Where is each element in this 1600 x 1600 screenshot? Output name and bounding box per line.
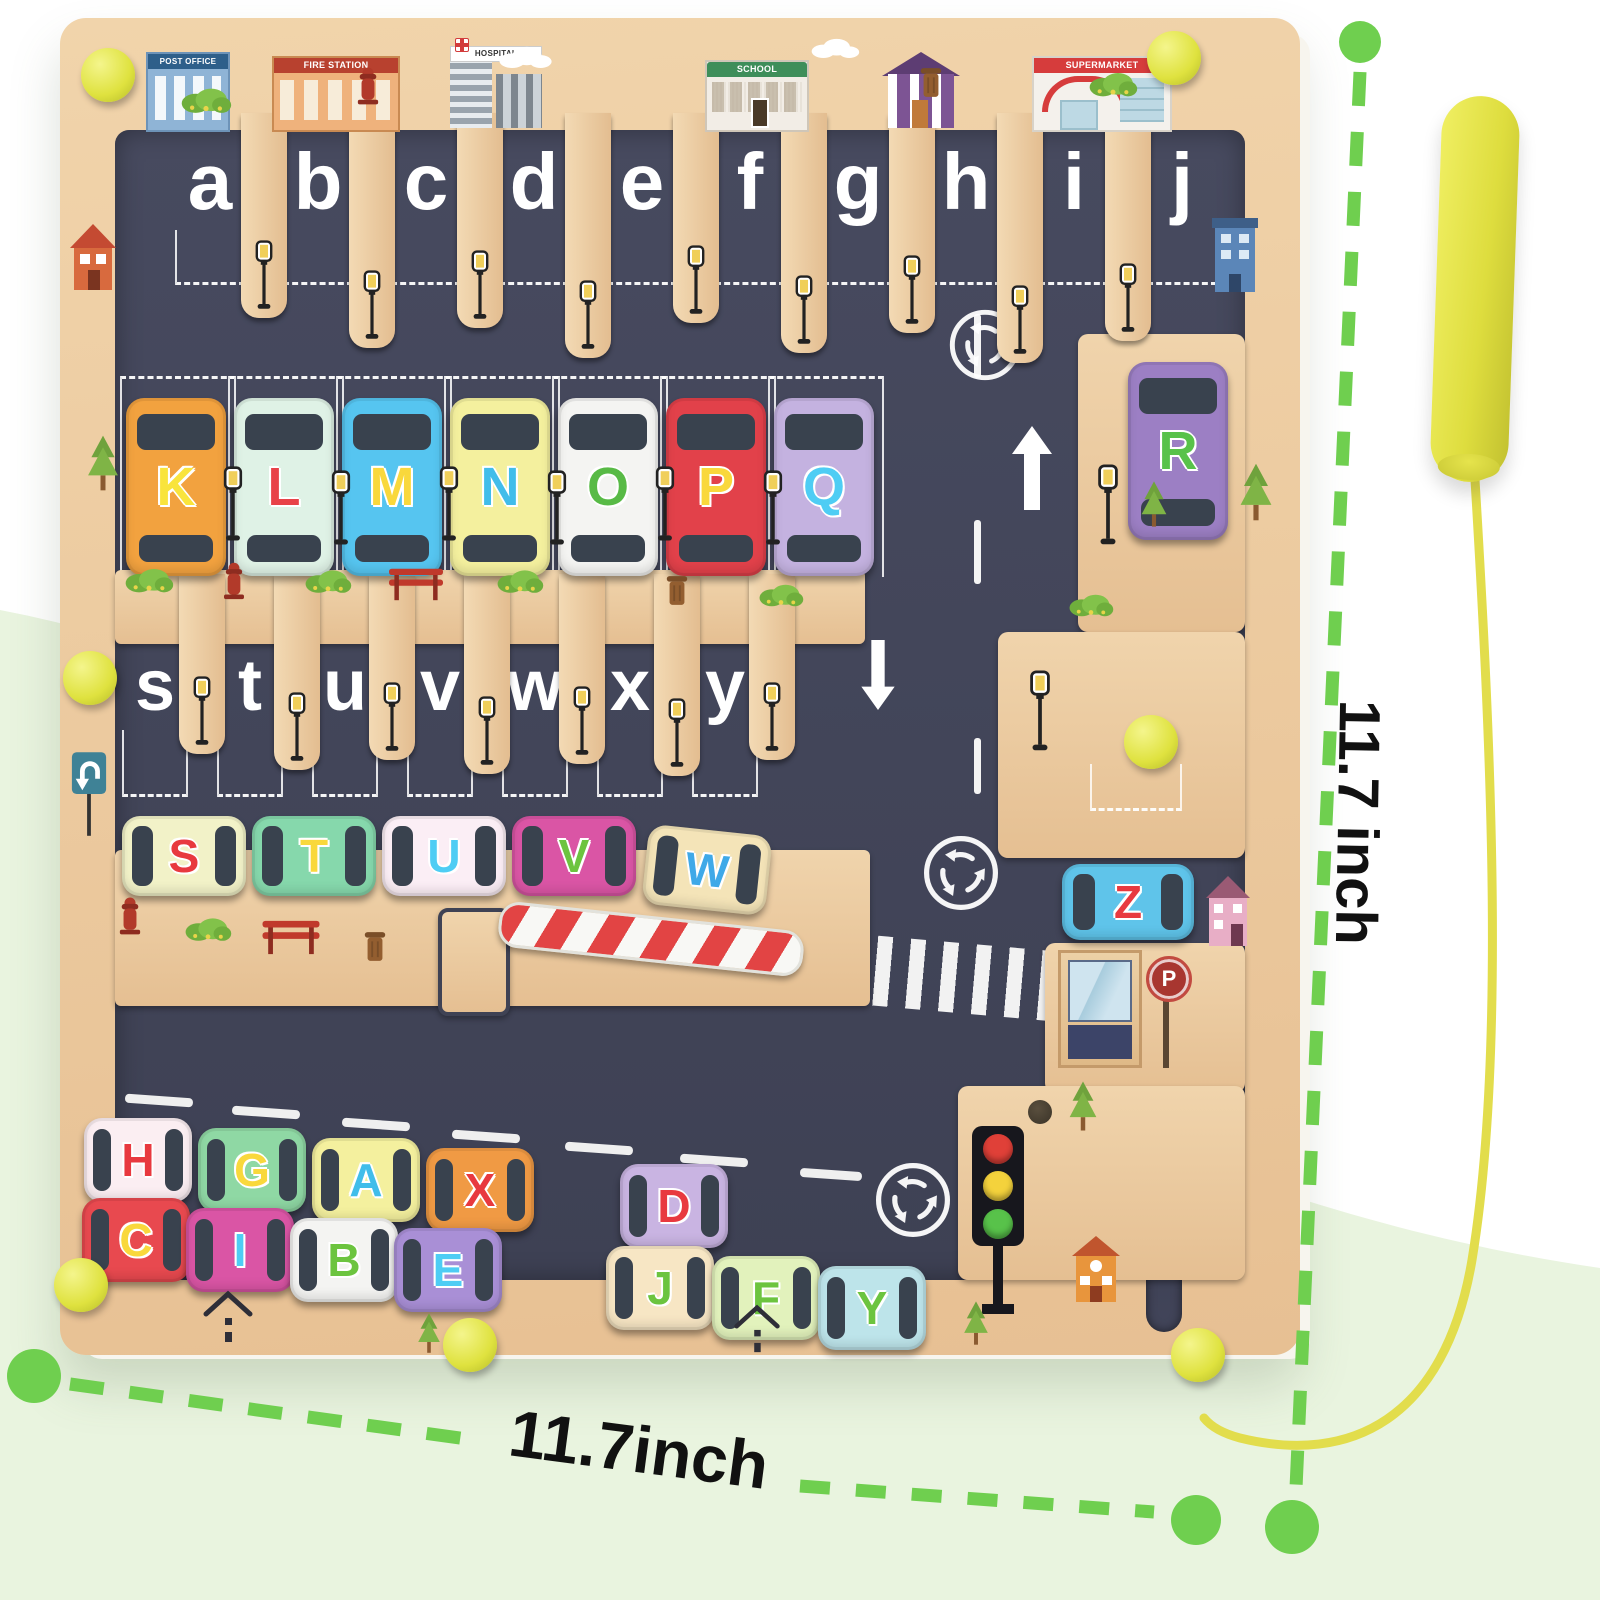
- slider-slat[interactable]: [997, 113, 1043, 363]
- tree-icon: [86, 434, 120, 492]
- letter-car-B[interactable]: B: [290, 1218, 398, 1302]
- purple-house-door: [912, 100, 928, 128]
- slider-slat[interactable]: [464, 574, 510, 774]
- slider-slat[interactable]: [179, 574, 225, 754]
- letter-car-Q[interactable]: Q: [774, 398, 874, 576]
- parking-spot: [931, 230, 1001, 285]
- trash-icon: [918, 64, 944, 100]
- toll-booth-panel: [1068, 1025, 1132, 1059]
- parking-spot: [283, 230, 353, 285]
- house-pink-icon: [1204, 874, 1252, 950]
- traffic-light-bulb: [983, 1209, 1013, 1239]
- lamppost-icon: [1094, 464, 1122, 548]
- road-center-dash: [974, 738, 981, 794]
- parking-spot: [715, 230, 785, 285]
- product-photo: POST OFFICE FIRE STATION HOSPITAL SCHOOL…: [0, 0, 1600, 1600]
- maze-letter-a: a: [188, 142, 233, 222]
- slider-slat[interactable]: [781, 113, 827, 353]
- lamppost-icon: [1007, 285, 1033, 357]
- parking-sign-letter: P: [1162, 966, 1177, 992]
- house-outline-icon: [732, 1304, 782, 1354]
- corner-knob: [1147, 31, 1201, 85]
- supermarket-door: [1060, 100, 1098, 130]
- lamppost-icon: [379, 682, 405, 754]
- parking-spot: [1090, 764, 1182, 811]
- corner-knob: [63, 651, 117, 705]
- corner-knob: [1124, 715, 1178, 769]
- lamppost-icon: [664, 698, 690, 770]
- slider-slat[interactable]: [241, 113, 287, 318]
- toll-booth-window: [1068, 960, 1132, 1022]
- bush-icon: [1068, 590, 1114, 618]
- maze-letter-f: f: [737, 142, 764, 222]
- traffic-light-bulb: [983, 1134, 1013, 1164]
- slider-slat[interactable]: [1105, 113, 1151, 341]
- letter-car-L[interactable]: L: [234, 398, 334, 576]
- lamppost-icon: [251, 240, 277, 312]
- slider-slat[interactable]: [349, 113, 395, 348]
- house-red-icon: [68, 222, 118, 294]
- letter-car-P[interactable]: P: [666, 398, 766, 576]
- letter-car-W[interactable]: W: [641, 824, 773, 917]
- letter-car-V[interactable]: V: [512, 816, 636, 896]
- slider-slat[interactable]: [457, 113, 503, 328]
- maze-letter-g: g: [834, 142, 883, 222]
- parking-spot: [823, 230, 893, 285]
- slider-slat[interactable]: [565, 113, 611, 358]
- lamppost-icon: [683, 245, 709, 317]
- letter-car-O[interactable]: O: [558, 398, 658, 576]
- slider-slat[interactable]: [889, 113, 935, 333]
- maze-letter-x: x: [610, 650, 650, 722]
- maze-letter-c: c: [404, 142, 449, 222]
- parking-spot: [1147, 230, 1217, 285]
- lamppost-icon: [652, 466, 678, 544]
- letter-car-I[interactable]: I: [186, 1208, 294, 1292]
- bush-icon: [758, 580, 804, 608]
- hydrant-icon: [356, 64, 380, 106]
- maze-letter-j: j: [1171, 142, 1193, 222]
- maze-letter-b: b: [294, 142, 343, 222]
- cloud-icon: [496, 46, 554, 68]
- lamppost-icon: [899, 255, 925, 327]
- red-cross-icon: [455, 38, 469, 52]
- post-office-label: POST OFFICE: [148, 54, 228, 69]
- parking-spot: [175, 230, 245, 285]
- corner-knob: [443, 1318, 497, 1372]
- lamppost-icon: [759, 682, 785, 754]
- cloud-icon: [808, 38, 862, 58]
- slider-slat[interactable]: [673, 113, 719, 323]
- maze-letter-u: u: [323, 650, 367, 722]
- trash-icon: [362, 928, 388, 964]
- parking-spot: [499, 230, 569, 285]
- house-orange-icon: [1070, 1234, 1122, 1306]
- magnetic-pen-wand[interactable]: [1429, 95, 1520, 483]
- bench-icon: [386, 566, 446, 602]
- lamppost-icon: [760, 470, 786, 548]
- maze-letter-v: v: [420, 650, 460, 722]
- alphabet-maze-board: POST OFFICE FIRE STATION HOSPITAL SCHOOL…: [60, 18, 1300, 1355]
- hospital-tower: [450, 58, 492, 128]
- roundabout-icon: [873, 1160, 953, 1240]
- lamppost-icon: [467, 250, 493, 322]
- letter-car-U[interactable]: U: [382, 816, 506, 896]
- letter-car-Y[interactable]: Y: [818, 1266, 926, 1350]
- slider-slat[interactable]: [559, 574, 605, 764]
- school-label: SCHOOL: [707, 62, 807, 77]
- parking-sign-pole: [1163, 996, 1169, 1068]
- bush-icon: [180, 84, 232, 114]
- letter-car-Z[interactable]: Z: [1062, 864, 1194, 940]
- bench-icon: [260, 918, 322, 956]
- parking-spot: [391, 230, 461, 285]
- maze-letter-e: e: [620, 142, 665, 222]
- letter-car-S[interactable]: S: [122, 816, 246, 896]
- building-school: SCHOOL: [705, 60, 809, 132]
- toll-booth: [1058, 950, 1142, 1068]
- corner-knob: [81, 48, 135, 102]
- bush-icon: [304, 566, 352, 594]
- corner-knob: [54, 1258, 108, 1312]
- slider-slat[interactable]: [274, 574, 320, 770]
- bush-icon: [124, 564, 174, 594]
- letter-car-D[interactable]: D: [620, 1164, 728, 1248]
- roundabout-icon: [921, 833, 1001, 913]
- maze-letter-h: h: [942, 142, 991, 222]
- letter-car-J[interactable]: J: [606, 1246, 714, 1330]
- house-blue-icon: [1210, 216, 1260, 296]
- lamppost-icon: [436, 466, 462, 544]
- traffic-light-pole: [993, 1246, 1003, 1308]
- parking-sign: P: [1146, 956, 1192, 1002]
- lamppost-icon: [544, 470, 570, 548]
- arrow-up-icon: [1010, 426, 1054, 510]
- parking-spot: [607, 230, 677, 285]
- maze-letter-y: y: [705, 650, 745, 722]
- maze-letter-t: t: [238, 650, 262, 722]
- bush-icon: [1088, 68, 1138, 98]
- hospital-wing: [496, 74, 542, 128]
- lamppost-icon: [791, 275, 817, 347]
- tree-icon: [416, 1312, 442, 1354]
- corner-knob: [1171, 1328, 1225, 1382]
- traffic-light-icon: [972, 1126, 1024, 1246]
- letter-car-N[interactable]: N: [450, 398, 550, 576]
- parking-spot: [122, 730, 188, 797]
- letter-car-T[interactable]: T: [252, 816, 376, 896]
- road-center-dash: [974, 520, 981, 584]
- lamppost-icon: [359, 270, 385, 342]
- tree-icon: [1140, 480, 1168, 528]
- tree-icon: [1068, 1080, 1098, 1132]
- lamppost-icon: [1026, 670, 1054, 754]
- tree-icon: [962, 1300, 990, 1346]
- letter-car-A[interactable]: A: [312, 1138, 420, 1222]
- house-outline-icon: [202, 1290, 254, 1344]
- lamppost-icon: [474, 696, 500, 768]
- trash-icon: [664, 572, 690, 608]
- maze-letter-d: d: [510, 142, 559, 222]
- lamppost-icon: [569, 686, 595, 758]
- finger-hole: [1028, 1100, 1052, 1124]
- letter-car-K[interactable]: K: [126, 398, 226, 576]
- bush-icon: [184, 914, 232, 942]
- lamppost-icon: [328, 470, 354, 548]
- hydrant-icon: [222, 560, 246, 600]
- school-door: [751, 98, 769, 128]
- arrow-down-icon: [860, 640, 896, 710]
- traffic-light-bulb: [983, 1171, 1013, 1201]
- bush-icon: [496, 566, 544, 594]
- lamppost-icon: [1115, 263, 1141, 335]
- lamppost-icon: [189, 676, 215, 748]
- maze-letter-s: s: [135, 650, 175, 722]
- letter-car-X[interactable]: X: [426, 1148, 534, 1232]
- building-fire-station: FIRE STATION: [272, 56, 400, 132]
- lamppost-icon: [220, 466, 246, 544]
- lamppost-icon: [575, 280, 601, 352]
- letter-car-E[interactable]: E: [394, 1228, 502, 1312]
- letter-car-M[interactable]: M: [342, 398, 442, 576]
- letter-car-H[interactable]: H: [84, 1118, 192, 1202]
- letter-car-G[interactable]: G: [198, 1128, 306, 1212]
- maze-letter-w: w: [507, 650, 563, 722]
- maze-letter-i: i: [1063, 142, 1085, 222]
- hydrant-icon: [118, 894, 142, 936]
- tree-icon: [1238, 462, 1274, 522]
- parking-spot: [1039, 230, 1109, 285]
- lamppost-icon: [284, 692, 310, 764]
- uturn-icon: [70, 750, 108, 838]
